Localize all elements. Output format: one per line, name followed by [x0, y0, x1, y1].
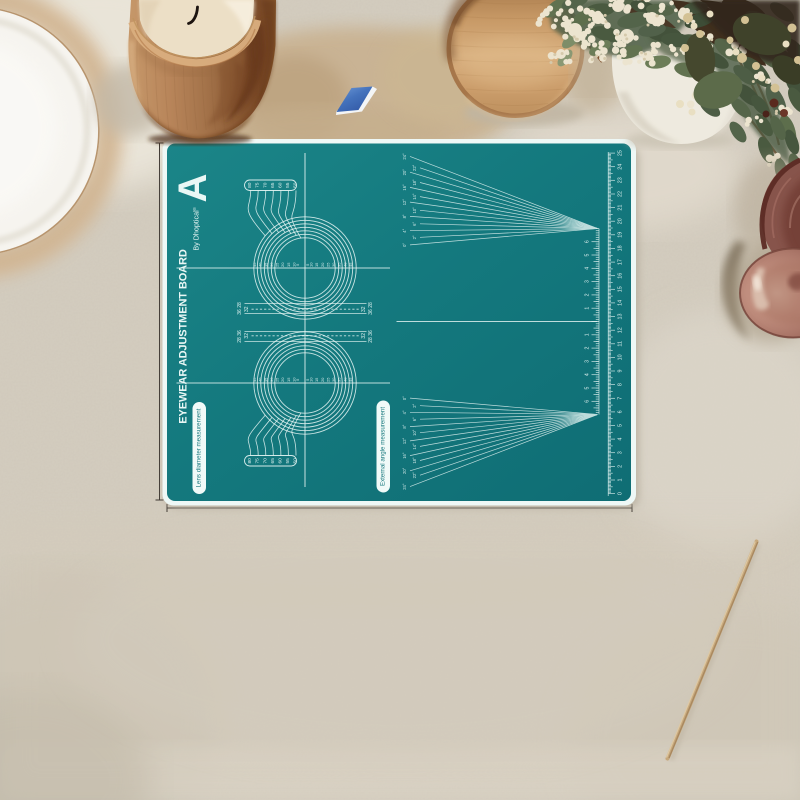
svg-text:60: 60 [277, 182, 283, 188]
svg-text:32: 32 [244, 306, 250, 312]
svg-text:25: 25 [618, 150, 624, 156]
svg-text:32: 32 [361, 333, 367, 339]
svg-text:Lens diameter measurement: Lens diameter measurement [196, 408, 203, 487]
svg-text:40: 40 [342, 262, 347, 267]
svg-text:14°: 14° [412, 193, 417, 200]
svg-text:55: 55 [285, 458, 291, 464]
svg-text:50: 50 [293, 182, 299, 188]
svg-text:75: 75 [255, 458, 261, 464]
svg-text:6: 6 [585, 240, 591, 243]
svg-text:20: 20 [280, 262, 285, 267]
svg-text:14: 14 [618, 300, 624, 306]
svg-text:28: 28 [237, 302, 243, 308]
svg-text:20: 20 [320, 377, 325, 382]
svg-text:30: 30 [331, 377, 336, 382]
svg-text:0°: 0° [402, 396, 407, 400]
svg-text:30: 30 [269, 377, 274, 382]
svg-text:25: 25 [275, 262, 280, 267]
svg-text:3: 3 [585, 280, 591, 283]
svg-text:36: 36 [368, 330, 374, 336]
svg-text:1: 1 [585, 307, 591, 310]
svg-text:28: 28 [368, 302, 374, 308]
svg-text:3: 3 [618, 451, 624, 454]
svg-text:2°: 2° [412, 403, 417, 407]
svg-text:18°: 18° [412, 457, 417, 464]
svg-text:10: 10 [618, 354, 624, 360]
svg-text:36: 36 [237, 309, 243, 315]
svg-text:22°: 22° [412, 164, 417, 171]
svg-text:25: 25 [325, 377, 330, 382]
svg-text:2: 2 [585, 293, 591, 296]
svg-text:36: 36 [237, 330, 243, 336]
svg-text:16°: 16° [402, 452, 407, 459]
svg-text:17: 17 [618, 259, 624, 265]
svg-text:2°: 2° [412, 235, 417, 239]
svg-text:10: 10 [309, 377, 314, 382]
svg-text:A: A [171, 174, 215, 203]
svg-text:28: 28 [237, 337, 243, 343]
svg-text:20: 20 [618, 218, 624, 224]
svg-text:70: 70 [262, 182, 268, 188]
svg-text:40: 40 [258, 377, 263, 382]
svg-text:7: 7 [618, 397, 624, 400]
svg-text:8°: 8° [402, 214, 407, 218]
svg-text:5: 5 [585, 253, 591, 256]
svg-text:4: 4 [585, 267, 591, 270]
svg-text:35: 35 [263, 262, 268, 267]
svg-text:15: 15 [314, 262, 319, 267]
svg-text:75: 75 [255, 182, 261, 188]
svg-text:35: 35 [337, 262, 342, 267]
svg-text:2: 2 [618, 465, 624, 468]
svg-text:18: 18 [618, 245, 624, 251]
svg-text:25: 25 [325, 262, 330, 267]
svg-text:25: 25 [275, 377, 280, 382]
svg-text:2: 2 [585, 347, 591, 350]
svg-text:3: 3 [585, 360, 591, 363]
svg-text:15: 15 [618, 286, 624, 292]
svg-text:24: 24 [618, 164, 624, 170]
svg-text:65: 65 [270, 458, 276, 464]
svg-text:0°: 0° [402, 243, 407, 247]
svg-text:22°: 22° [412, 472, 417, 479]
svg-text:24°: 24° [402, 153, 407, 160]
svg-text:16°: 16° [402, 184, 407, 191]
svg-text:4°: 4° [402, 228, 407, 232]
svg-text:EYEWEAR ADJUSTMENT BOARD: EYEWEAR ADJUSTMENT BOARD [178, 249, 190, 424]
svg-text:8: 8 [618, 383, 624, 386]
svg-text:40: 40 [258, 262, 263, 267]
svg-text:35: 35 [263, 377, 268, 382]
svg-text:40: 40 [342, 377, 347, 382]
svg-text:4: 4 [585, 373, 591, 376]
svg-text:6: 6 [585, 400, 591, 403]
svg-text:30: 30 [269, 262, 274, 267]
svg-text:15: 15 [286, 262, 291, 267]
svg-text:10: 10 [309, 262, 314, 267]
svg-text:60: 60 [277, 458, 283, 464]
svg-text:30: 30 [331, 262, 336, 267]
svg-text:External angle measurement: External angle measurement [380, 407, 387, 486]
svg-text:12: 12 [618, 327, 624, 333]
svg-text:55: 55 [285, 182, 291, 188]
svg-text:23: 23 [618, 177, 624, 183]
svg-text:32: 32 [244, 333, 250, 339]
svg-text:12°: 12° [402, 437, 407, 444]
svg-text:18°: 18° [412, 179, 417, 186]
svg-text:6: 6 [618, 410, 624, 413]
svg-text:70: 70 [262, 458, 268, 464]
svg-text:32: 32 [361, 306, 367, 312]
svg-text:20: 20 [280, 377, 285, 382]
svg-text:80: 80 [247, 182, 253, 188]
svg-text:0: 0 [618, 492, 624, 495]
svg-text:80: 80 [247, 458, 253, 464]
svg-text:15: 15 [314, 377, 319, 382]
svg-text:8°: 8° [402, 424, 407, 428]
svg-text:4°: 4° [402, 410, 407, 414]
svg-text:10°: 10° [412, 207, 417, 214]
svg-text:45: 45 [348, 377, 353, 382]
svg-text:5: 5 [618, 424, 624, 427]
svg-text:12°: 12° [402, 199, 407, 206]
svg-text:6°: 6° [412, 221, 417, 225]
svg-text:1: 1 [618, 479, 624, 482]
svg-text:45: 45 [348, 262, 353, 267]
svg-text:45: 45 [252, 377, 257, 382]
svg-text:45: 45 [252, 262, 257, 267]
svg-text:20°: 20° [402, 467, 407, 474]
svg-text:35: 35 [337, 377, 342, 382]
svg-text:36: 36 [368, 309, 374, 315]
svg-text:1: 1 [585, 333, 591, 336]
svg-text:5: 5 [585, 386, 591, 389]
svg-text:28: 28 [368, 337, 374, 343]
svg-text:13: 13 [618, 314, 624, 320]
svg-text:By Dhoptical®: By Dhoptical® [192, 207, 201, 250]
svg-text:9: 9 [618, 370, 624, 373]
svg-text:24°: 24° [402, 483, 407, 490]
svg-text:4: 4 [618, 438, 624, 441]
svg-text:16: 16 [618, 273, 624, 279]
svg-text:14°: 14° [412, 443, 417, 450]
svg-text:20: 20 [320, 262, 325, 267]
svg-text:19: 19 [618, 232, 624, 238]
svg-text:65: 65 [270, 182, 276, 188]
svg-text:20°: 20° [402, 169, 407, 176]
svg-text:15: 15 [286, 377, 291, 382]
svg-text:11: 11 [618, 341, 624, 347]
svg-text:10°: 10° [412, 429, 417, 436]
svg-text:6°: 6° [412, 417, 417, 421]
svg-text:50: 50 [293, 458, 299, 464]
svg-text:22: 22 [618, 191, 624, 197]
svg-text:21: 21 [618, 205, 624, 211]
